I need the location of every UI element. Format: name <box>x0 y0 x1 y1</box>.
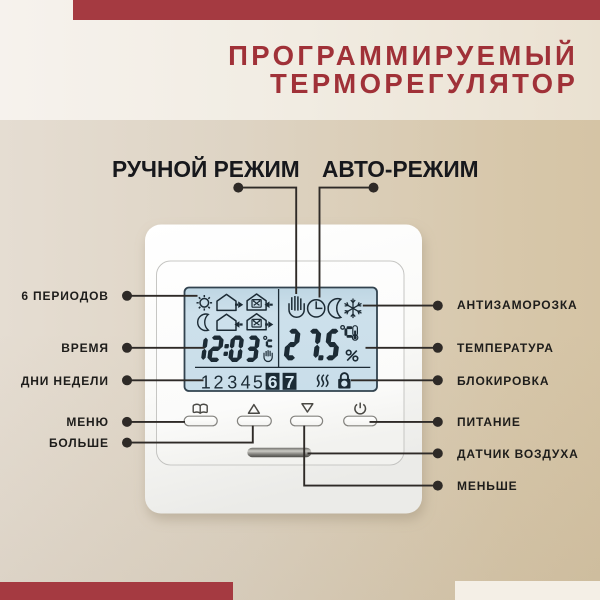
svg-text:3: 3 <box>227 373 237 393</box>
svg-text:1: 1 <box>201 373 211 393</box>
svg-text:5: 5 <box>253 373 263 393</box>
svg-text:2: 2 <box>213 373 223 393</box>
svg-text:6: 6 <box>268 372 278 392</box>
svg-text:4: 4 <box>241 373 251 393</box>
svg-text:7: 7 <box>285 372 295 392</box>
